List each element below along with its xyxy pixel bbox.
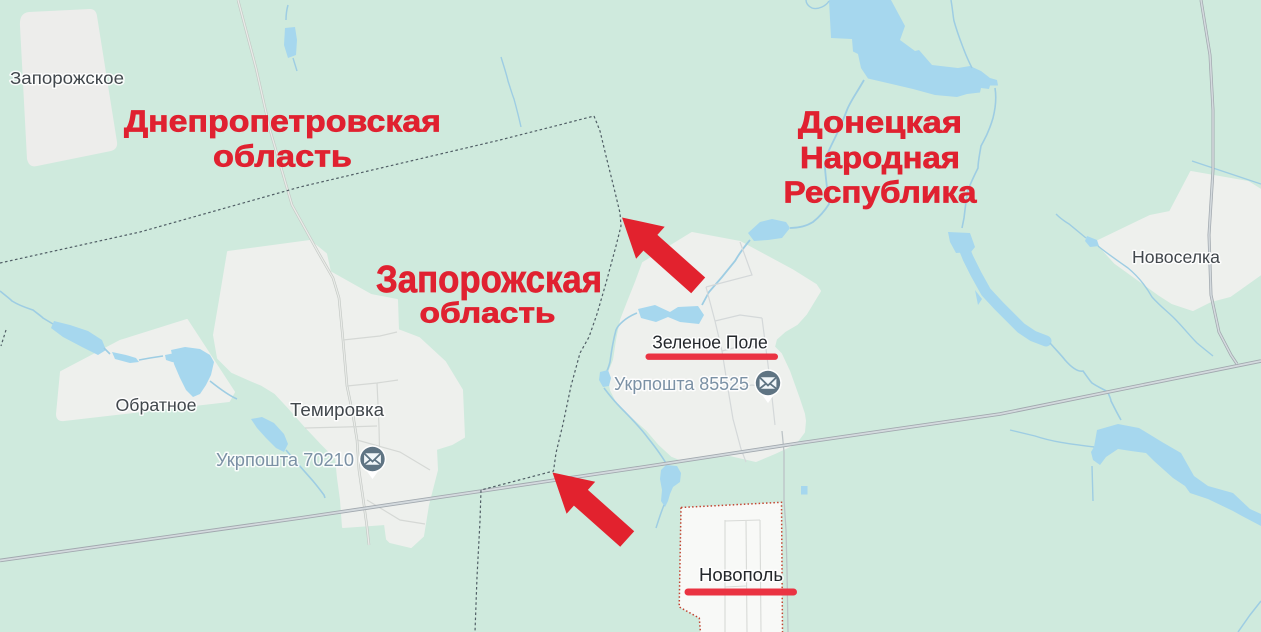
svg-text:Темировка: Темировка [290,400,385,420]
svg-text:Народная: Народная [800,140,960,175]
svg-text:Днепропетровская: Днепропетровская [124,104,441,139]
svg-text:Укрпошта 70210: Укрпошта 70210 [216,450,354,470]
svg-text:Укрпошта 85525: Укрпошта 85525 [614,374,749,394]
svg-text:Зеленое Поле: Зеленое Поле [652,333,768,353]
svg-text:Запорожская: Запорожская [376,259,602,301]
svg-text:Новоселка: Новоселка [1132,247,1220,267]
svg-text:Донецкая: Донецкая [798,105,962,140]
svg-text:Обратное: Обратное [116,395,197,415]
svg-text:Новополь: Новополь [699,565,783,585]
svg-text:Запорожское: Запорожское [10,68,124,88]
svg-text:Республика: Республика [784,175,978,210]
svg-text:область: область [213,139,352,174]
svg-text:область: область [420,298,556,330]
